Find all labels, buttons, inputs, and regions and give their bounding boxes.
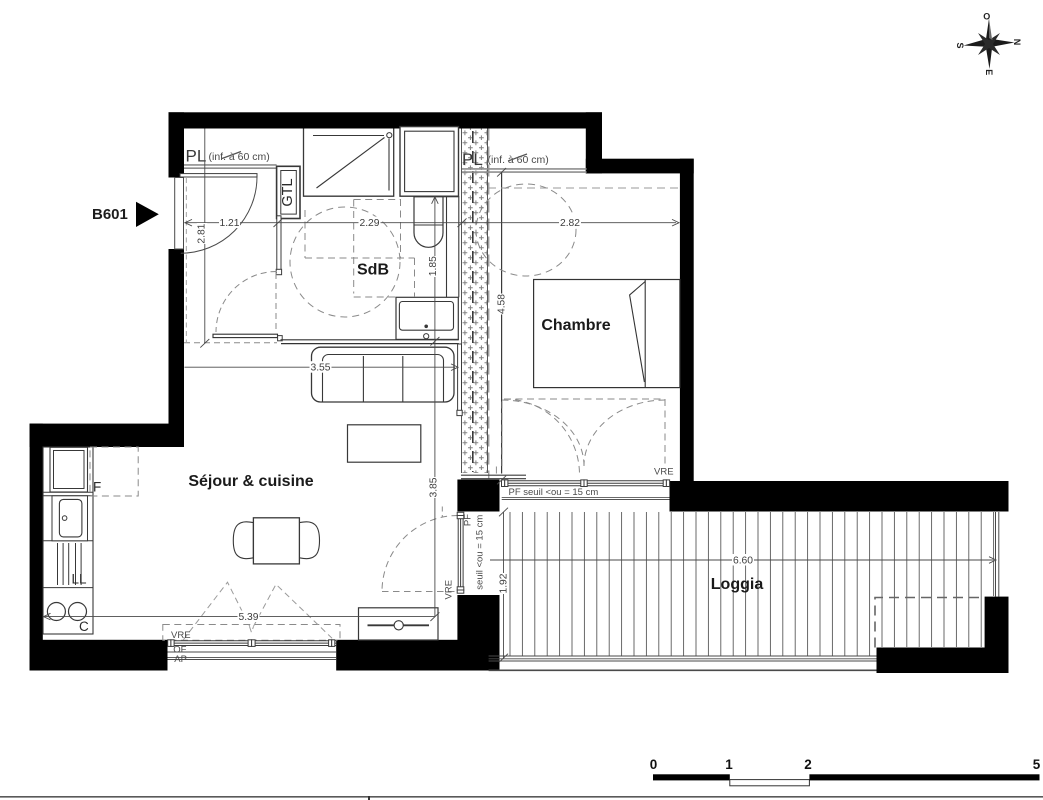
svg-text:2.29: 2.29 bbox=[359, 218, 379, 229]
svg-text:4.58: 4.58 bbox=[497, 294, 508, 314]
svg-text:0: 0 bbox=[650, 757, 658, 772]
svg-text:SdB: SdB bbox=[357, 262, 389, 279]
svg-text:(inf. à 60 cm): (inf. à 60 cm) bbox=[488, 154, 549, 166]
svg-text:PF seuil <ou = 15 cm: PF seuil <ou = 15 cm bbox=[509, 487, 599, 498]
svg-text:Loggia: Loggia bbox=[711, 576, 764, 593]
svg-text:PL: PL bbox=[186, 147, 207, 166]
svg-text:1.92: 1.92 bbox=[499, 573, 510, 593]
svg-text:PL: PL bbox=[462, 150, 483, 169]
svg-text:Séjour & cuisine: Séjour & cuisine bbox=[188, 473, 313, 490]
svg-text:Chambre: Chambre bbox=[541, 317, 610, 334]
svg-text:3.85: 3.85 bbox=[429, 477, 440, 497]
svg-text:1.85: 1.85 bbox=[428, 256, 439, 276]
svg-text:5: 5 bbox=[1033, 757, 1041, 772]
svg-text:seuil <ou = 15 cm: seuil <ou = 15 cm bbox=[474, 515, 485, 590]
svg-text:PF: PF bbox=[462, 514, 473, 526]
svg-text:2.82: 2.82 bbox=[560, 218, 580, 229]
svg-text:LL: LL bbox=[72, 572, 88, 587]
svg-text:E: E bbox=[984, 69, 994, 75]
svg-text:C: C bbox=[79, 619, 89, 634]
svg-text:N: N bbox=[1012, 39, 1022, 46]
svg-text:6.60: 6.60 bbox=[733, 556, 753, 567]
svg-text:1: 1 bbox=[725, 757, 733, 772]
svg-text:VRE: VRE bbox=[171, 630, 191, 641]
svg-text:1.21: 1.21 bbox=[219, 218, 239, 229]
svg-text:F: F bbox=[93, 480, 101, 495]
svg-text:O: O bbox=[983, 12, 990, 22]
svg-text:2.81: 2.81 bbox=[197, 223, 208, 243]
svg-text:GTL: GTL bbox=[280, 178, 296, 206]
svg-text:AP: AP bbox=[174, 654, 187, 665]
svg-text:5.39: 5.39 bbox=[238, 612, 258, 623]
svg-text:VRE: VRE bbox=[444, 580, 455, 600]
svg-text:3.55: 3.55 bbox=[310, 363, 330, 374]
svg-text:B601: B601 bbox=[92, 206, 128, 223]
svg-text:2: 2 bbox=[804, 757, 812, 772]
svg-text:VRE: VRE bbox=[654, 467, 674, 478]
svg-text:S: S bbox=[955, 42, 965, 48]
